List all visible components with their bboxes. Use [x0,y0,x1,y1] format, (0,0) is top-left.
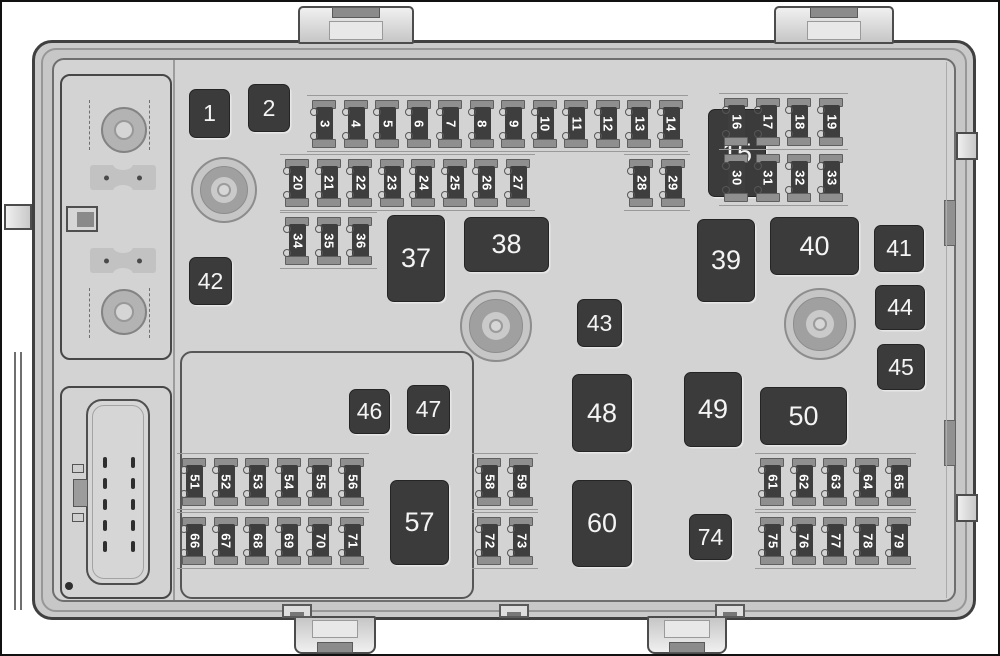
fuse-clip [212,490,220,498]
fuse-64: 64 [855,458,879,506]
fuse-terminal [855,497,879,506]
fuse-body: 21 [321,166,338,200]
fuse-clip [754,162,762,170]
fuse-71: 71 [340,517,364,565]
fuse-terminal [887,497,911,506]
connector-slot [131,499,135,510]
fuse-terminal [792,497,816,506]
fuse-terminal [182,497,206,506]
fuse-clip [373,132,381,140]
fuse-number: 65 [892,474,907,489]
fuse-number: 33 [824,170,839,185]
relay-number: 45 [888,354,914,381]
fuse-terminal [756,193,780,202]
fuse-group-bracket [177,568,369,569]
relay-47: 47 [407,385,450,434]
fuse-body: 65 [891,465,908,499]
fuse-body: 13 [631,107,648,141]
fuse-body: 25 [447,166,464,200]
fuse-19: 19 [819,98,843,146]
fuse-body: 26 [478,166,495,200]
fuse-number: 71 [345,533,360,548]
fuse-terminal [438,139,462,148]
fuse-number: 54 [282,474,297,489]
fuse-terminal [792,556,816,565]
fuse-clip [338,490,346,498]
fuse-terminal [470,139,494,148]
fuse-clip [373,108,381,116]
components-layer: 1215373839404142434445464748495057607434… [2,2,998,654]
fuse-18: 18 [787,98,811,146]
fuse-body: 7 [442,107,459,141]
fuse-clip [338,549,346,557]
fuse-clip [562,108,570,116]
fuse-body: 59 [513,465,530,499]
fuse-number: 77 [828,533,843,548]
fuse-number: 72 [482,533,497,548]
bolt-hole [217,183,231,197]
fuse-14: 14 [659,100,683,148]
fuse-group-bracket [280,210,535,211]
fuse-9: 9 [501,100,525,148]
fuse-terminal [855,556,879,565]
relay-number: 50 [788,401,818,432]
fuse-clip [315,249,323,257]
fuse-clip [507,490,515,498]
fuse-number: 36 [353,233,368,248]
fuse-clip [315,167,323,175]
fuse-body: 77 [827,524,844,558]
fuse-number: 3 [317,120,332,128]
fuse-clip [475,525,483,533]
fuse-group-bracket [177,512,369,513]
fuse-21: 21 [317,159,341,207]
fuse-17: 17 [756,98,780,146]
fuse-52: 52 [214,458,238,506]
fuse-terminal [344,139,368,148]
fuse-terminal [509,497,533,506]
fuse-54: 54 [277,458,301,506]
fuse-terminal [661,198,685,207]
fuse-73: 73 [509,517,533,565]
fuse-clip [378,191,386,199]
fuse-68: 68 [245,517,269,565]
fuse-number: 58 [482,474,497,489]
fuse-number: 22 [353,175,368,190]
fuse-number: 18 [792,114,807,129]
fuse-clip [283,191,291,199]
fuse-10: 10 [533,100,557,148]
fuse-number: 76 [797,533,812,548]
fuse-clip [283,225,291,233]
fuse-clip [627,191,635,199]
fuse-clip [441,191,449,199]
fuse-clip [405,108,413,116]
fuse-terminal [277,497,301,506]
fuse-body: 69 [281,524,298,558]
fuse-clip [722,162,730,170]
fuse-terminal [348,256,372,265]
fuse-box-diagram: 1215373839404142434445464748495057607434… [0,0,1000,656]
fuse-clip [758,466,766,474]
fuse-body: 6 [411,107,428,141]
fuse-clip [758,525,766,533]
fuse-8: 8 [470,100,494,148]
fuse-terminal [474,198,498,207]
fuse-number: 8 [475,120,490,128]
fuse-body: 56 [344,465,361,499]
fuse-clip [212,549,220,557]
fuse-5: 5 [375,100,399,148]
fuse-number: 61 [765,474,780,489]
fuse-clip [885,549,893,557]
fuse-terminal [277,556,301,565]
fuse-terminal [285,198,309,207]
fuse-clip [180,490,188,498]
fuse-body: 11 [568,107,585,141]
fuse-clip [885,525,893,533]
fuse-group-bracket [719,205,848,206]
fuse-terminal [596,139,620,148]
fuse-terminal [285,256,309,265]
fuse-number: 26 [479,175,494,190]
fuse-terminal [375,139,399,148]
fuse-24: 24 [411,159,435,207]
relay-44: 44 [875,285,925,330]
fuse-number: 25 [448,175,463,190]
fuse-55: 55 [308,458,332,506]
relay-number: 1 [203,100,216,127]
fuse-30: 30 [724,154,748,202]
fuse-terminal [411,198,435,207]
relay-2: 2 [248,84,290,132]
fuse-body: 31 [760,161,777,195]
fuse-terminal [501,139,525,148]
fuse-63: 63 [823,458,847,506]
fuse-number: 9 [506,120,521,128]
fuse-terminal [245,556,269,565]
relay-number: 2 [263,95,276,122]
fuse-clip [441,167,449,175]
fuse-terminal [760,497,784,506]
relay-39: 39 [697,219,755,302]
fuse-clip [885,490,893,498]
fuse-clip [315,191,323,199]
fuse-22: 22 [348,159,372,207]
fuse-group-bracket [307,95,688,96]
fuse-clip [315,225,323,233]
fuse-number: 13 [632,116,647,131]
fuse-32: 32 [787,154,811,202]
fuse-72: 72 [477,517,501,565]
fuse-terminal [564,139,588,148]
fuse-body: 62 [796,465,813,499]
fuse-body: 20 [289,166,306,200]
fuse-clip [475,549,483,557]
fuse-clip [594,108,602,116]
fuse-number: 70 [313,533,328,548]
relay-41: 41 [874,225,924,272]
fuse-clip [436,108,444,116]
fuse-clip [468,108,476,116]
relay-number: 47 [416,396,442,423]
fuse-clip [657,108,665,116]
fuse-clip [625,108,633,116]
relay-74: 74 [689,514,732,560]
fuse-69: 69 [277,517,301,565]
fuse-clip [378,167,386,175]
fuse-79: 79 [887,517,911,565]
fuse-body: 35 [321,224,338,258]
fuse-body: 32 [791,161,808,195]
relay-49: 49 [684,372,742,447]
fuse-number: 20 [290,175,305,190]
fuse-31: 31 [756,154,780,202]
fuse-body: 51 [186,465,203,499]
fuse-clip [472,191,480,199]
fuse-body: 63 [827,465,844,499]
fuse-clip [283,249,291,257]
fuse-clip [790,549,798,557]
fuse-clip [342,108,350,116]
connector-slot [131,520,135,531]
fuse-clip [790,490,798,498]
fuse-body: 12 [600,107,617,141]
fuse-number: 17 [761,114,776,129]
fuse-number: 69 [282,533,297,548]
fuse-clip [790,525,798,533]
fuse-number: 19 [824,114,839,129]
relay-number: 39 [711,245,741,276]
fuse-terminal [214,556,238,565]
fuse-body: 61 [764,465,781,499]
fuse-group-bracket [280,154,535,155]
fuse-body: 73 [513,524,530,558]
fuse-clip [212,466,220,474]
fuse-body: 28 [633,166,650,200]
fuse-clip [475,490,483,498]
fuse-7: 7 [438,100,462,148]
fuse-34: 34 [285,217,309,265]
fuse-clip [310,132,318,140]
fuse-clip [475,466,483,474]
relay-1: 1 [189,89,230,138]
fuse-group-bracket [307,151,688,152]
fuse-body: 5 [379,107,396,141]
fuse-body: 36 [352,224,369,258]
fuse-body: 53 [249,465,266,499]
fuse-clip [722,106,730,114]
fuse-clip [594,132,602,140]
fuse-number: 32 [792,170,807,185]
fuse-clip [507,466,515,474]
fuse-23: 23 [380,159,404,207]
fuse-clip [180,525,188,533]
fuse-body: 52 [218,465,235,499]
fuse-terminal [506,198,530,207]
fuse-body: 34 [289,224,306,258]
fuse-number: 35 [322,233,337,248]
fuse-body: 75 [764,524,781,558]
fuse-body: 76 [796,524,813,558]
fuse-body: 79 [891,524,908,558]
fuse-76: 76 [792,517,816,565]
fuse-clip [504,191,512,199]
fuse-body: 58 [481,465,498,499]
fuse-number: 73 [514,533,529,548]
fuse-clip [342,132,350,140]
fuse-66: 66 [182,517,206,565]
fuse-body: 33 [823,161,840,195]
fuse-number: 23 [385,175,400,190]
fuse-clip [338,525,346,533]
fuse-25: 25 [443,159,467,207]
relay-number: 44 [887,294,913,321]
fuse-clip [659,191,667,199]
fuse-20: 20 [285,159,309,207]
fuse-clip [346,191,354,199]
fuse-terminal [823,497,847,506]
relay-38: 38 [464,217,549,272]
fuse-clip [180,466,188,474]
fuse-body: 27 [510,166,527,200]
fuse-body: 10 [537,107,554,141]
fuse-group-bracket [280,268,377,269]
fuse-clip [409,191,417,199]
fuse-terminal [887,556,911,565]
fuse-body: 70 [312,524,329,558]
fuse-terminal [823,556,847,565]
relay-number: 43 [587,310,613,337]
fuse-body: 78 [859,524,876,558]
fuse-53: 53 [245,458,269,506]
fuse-terminal [627,139,651,148]
relay-number: 42 [198,268,224,295]
fuse-12: 12 [596,100,620,148]
fuse-group-bracket [719,93,848,94]
fuse-clip [468,132,476,140]
fuse-clip [499,132,507,140]
fuse-terminal [348,198,372,207]
fuse-terminal [443,198,467,207]
fuse-terminal [182,556,206,565]
connector-slot [103,541,107,552]
relay-40: 40 [770,217,859,275]
fuse-terminal [819,137,843,146]
fuse-number: 64 [860,474,875,489]
fuse-terminal [477,556,501,565]
fuse-clip [275,525,283,533]
fuse-clip [507,549,515,557]
fuse-clip [885,466,893,474]
relay-number: 60 [587,508,617,539]
fuse-body: 29 [665,166,682,200]
fuse-clip [562,132,570,140]
relay-46: 46 [349,389,390,434]
fuse-number: 14 [664,116,679,131]
relay-50: 50 [760,387,847,445]
fuse-terminal [509,556,533,565]
fuse-number: 28 [634,175,649,190]
fuse-terminal [787,193,811,202]
fuse-3: 3 [312,100,336,148]
fuse-number: 5 [380,120,395,128]
fuse-terminal [340,556,364,565]
fuse-clip [754,130,762,138]
fuse-number: 11 [569,117,584,132]
fuse-group-bracket [624,154,690,155]
fuse-number: 62 [797,474,812,489]
fuse-group-bracket [624,210,690,211]
fuse-body: 24 [415,166,432,200]
relay-number: 37 [401,243,431,274]
connector-slot [131,457,135,468]
stud-bolt [460,290,532,362]
fuse-body: 54 [281,465,298,499]
relay-43: 43 [577,299,622,347]
stud-bolt [191,157,257,223]
fuse-number: 59 [514,474,529,489]
stud-bolt [784,288,856,360]
fuse-body: 3 [316,107,333,141]
fuse-29: 29 [661,159,685,207]
connector-slot [103,457,107,468]
fuse-terminal [340,497,364,506]
fuse-clip [346,249,354,257]
fuse-body: 4 [348,107,365,141]
fuse-body: 23 [384,166,401,200]
fuse-number: 75 [765,533,780,548]
fuse-group-bracket [755,453,916,454]
relay-number: 38 [491,229,521,260]
relay-number: 57 [404,507,434,538]
connector-slot [131,541,135,552]
fuse-number: 31 [761,170,776,185]
fuse-13: 13 [627,100,651,148]
fuse-group-bracket [755,509,916,510]
fuse-number: 34 [290,233,305,248]
fuse-clip [275,549,283,557]
fuse-clip [346,167,354,175]
fuse-body: 67 [218,524,235,558]
fuse-4: 4 [344,100,368,148]
fuse-33: 33 [819,154,843,202]
fuse-number: 63 [828,474,843,489]
fuse-clip [405,132,413,140]
fuse-clip [436,132,444,140]
fuse-body: 14 [663,107,680,141]
fuse-group-bracket [472,512,538,513]
fuse-number: 10 [538,116,553,131]
fuse-terminal [819,193,843,202]
fuse-62: 62 [792,458,816,506]
relay-number: 49 [698,394,728,425]
fuse-number: 27 [511,175,526,190]
fuse-70: 70 [308,517,332,565]
fuse-group-bracket [755,568,916,569]
fuse-body: 9 [505,107,522,141]
fuse-group-bracket [177,509,369,510]
relay-37: 37 [387,215,445,302]
connector-slot [103,499,107,510]
fuse-clip [180,549,188,557]
fuse-group-bracket [719,149,848,150]
fuse-body: 8 [474,107,491,141]
fuse-clip [275,490,283,498]
fuse-clip [531,108,539,116]
relay-number: 48 [587,398,617,429]
fuse-clip [275,466,283,474]
